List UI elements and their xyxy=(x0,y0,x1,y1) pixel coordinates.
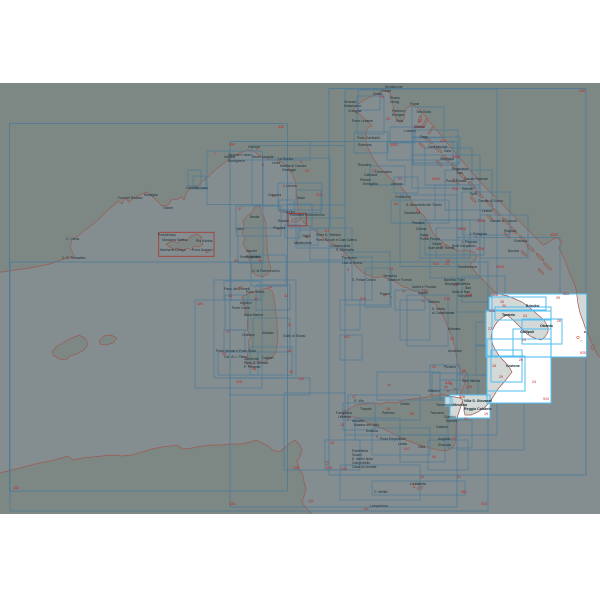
svg-text:Civitanova: Civitanova xyxy=(395,195,411,199)
svg-text:432: 432 xyxy=(278,125,284,129)
svg-text:29: 29 xyxy=(556,296,560,300)
svg-text:Sestri Levante: Sestri Levante xyxy=(252,155,274,159)
svg-text:Gravosa: Gravosa xyxy=(514,239,527,243)
svg-text:Taranto: Taranto xyxy=(502,313,516,317)
svg-text:34: 34 xyxy=(394,202,398,206)
svg-text:432: 432 xyxy=(13,486,19,490)
svg-text:21: 21 xyxy=(457,475,461,479)
svg-text:Ajaccio: Ajaccio xyxy=(246,249,257,253)
svg-text:Trau: Trau xyxy=(456,171,463,175)
svg-text:18: 18 xyxy=(492,364,496,368)
svg-text:Trapani: Trapani xyxy=(360,407,372,411)
svg-text:3008: 3008 xyxy=(476,247,484,251)
svg-text:16: 16 xyxy=(258,259,262,263)
svg-text:18: 18 xyxy=(330,441,334,445)
svg-text:Malamocco: Malamocco xyxy=(344,104,361,108)
svg-text:30: 30 xyxy=(502,304,506,308)
svg-text:Casa di Levante: Casa di Levante xyxy=(352,465,377,469)
svg-text:Crotone: Crotone xyxy=(506,364,520,368)
svg-text:Villa S. Giovanni: Villa S. Giovanni xyxy=(464,399,492,403)
svg-text:40: 40 xyxy=(254,297,258,301)
svg-text:910: 910 xyxy=(360,297,366,301)
svg-text:Pianosa: Pianosa xyxy=(273,226,285,230)
svg-text:Punta Planka: Punta Planka xyxy=(446,179,466,183)
svg-text:Riposto: Riposto xyxy=(446,419,458,423)
svg-text:Sibenik: Sibenik xyxy=(462,187,473,191)
svg-text:3004: 3004 xyxy=(432,177,440,181)
svg-text:Imperia: Imperia xyxy=(224,155,235,159)
svg-text:Rio Marina: Rio Marina xyxy=(196,239,213,243)
svg-text:Bordighera: Bordighera xyxy=(228,159,245,163)
svg-text:Punta Penna: Punta Penna xyxy=(420,237,440,241)
svg-text:Tremestieri: Tremestieri xyxy=(436,403,453,407)
svg-text:S. Vito: S. Vito xyxy=(354,399,364,403)
svg-text:Lido di Roma: Lido di Roma xyxy=(342,261,362,265)
svg-text:562: 562 xyxy=(461,490,467,494)
svg-text:La Valletta: La Valletta xyxy=(410,482,426,486)
svg-text:433: 433 xyxy=(326,466,332,470)
svg-text:926: 926 xyxy=(489,309,495,313)
svg-text:Palermo: Palermo xyxy=(382,411,395,415)
svg-text:34: 34 xyxy=(420,475,424,479)
svg-text:Catania: Catania xyxy=(436,425,448,429)
svg-text:Porto S. Stefano: Porto S. Stefano xyxy=(316,233,341,237)
svg-text:Brindisi: Brindisi xyxy=(526,304,539,308)
svg-text:C. S. Sebastian: C. S. Sebastian xyxy=(62,256,86,260)
svg-text:Napoli: Napoli xyxy=(418,291,428,295)
svg-text:Gaeta e Formia: Gaeta e Formia xyxy=(388,278,412,282)
svg-text:Reggio Calabria: Reggio Calabria xyxy=(464,407,492,411)
svg-text:Canale di Zirona: Canale di Zirona xyxy=(478,199,503,203)
svg-text:44: 44 xyxy=(234,259,238,263)
svg-text:Pizzano: Pizzano xyxy=(444,365,456,369)
svg-text:238: 238 xyxy=(293,466,299,470)
svg-text:45: 45 xyxy=(228,294,232,298)
svg-text:Monopoli: Monopoli xyxy=(458,294,472,298)
svg-text:S. Felice Circeo: S. Felice Circeo xyxy=(352,278,376,282)
svg-text:28: 28 xyxy=(557,319,561,323)
svg-text:Mazara del Vallo: Mazara del Vallo xyxy=(354,423,379,427)
svg-text:Maratea: Maratea xyxy=(448,327,461,331)
svg-text:Golfo di Tonasi: Golfo di Tonasi xyxy=(283,334,306,338)
svg-text:Licata: Licata xyxy=(398,442,407,446)
svg-text:918: 918 xyxy=(452,187,458,191)
svg-text:25: 25 xyxy=(522,338,526,342)
svg-text:A30: A30 xyxy=(445,381,451,385)
svg-text:21: 21 xyxy=(464,417,468,421)
svg-text:Canale Pazman: Canale Pazman xyxy=(464,177,488,181)
svg-text:Sciacca: Sciacca xyxy=(366,429,378,433)
svg-text:Alghero: Alghero xyxy=(240,301,252,305)
svg-text:31: 31 xyxy=(398,177,402,181)
svg-text:Siracusa: Siracusa xyxy=(438,443,451,447)
svg-text:4310: 4310 xyxy=(550,233,558,237)
svg-text:Porto Levante: Porto Levante xyxy=(352,119,373,123)
svg-text:Porto Ercole e Cala Galera: Porto Ercole e Cala Galera xyxy=(316,238,357,242)
svg-text:40: 40 xyxy=(432,455,436,459)
svg-text:Vibo Valona: Vibo Valona xyxy=(462,379,480,383)
svg-text:27: 27 xyxy=(488,327,492,331)
svg-text:Arbatax: Arbatax xyxy=(262,331,274,335)
svg-text:Porto Azzurro: Porto Azzurro xyxy=(192,248,213,252)
svg-text:Pola: Pola xyxy=(396,119,403,123)
svg-text:Fiumicino: Fiumicino xyxy=(342,256,357,260)
svg-text:Porto Empedocle: Porto Empedocle xyxy=(380,437,406,441)
svg-text:di Castellabate: di Castellabate xyxy=(432,311,455,315)
svg-text:920: 920 xyxy=(580,351,586,355)
svg-text:La Spezia: La Spezia xyxy=(278,157,293,161)
svg-text:43: 43 xyxy=(287,323,291,327)
svg-text:Porto Vesme e Porto Sous: Porto Vesme e Porto Sous xyxy=(216,349,256,353)
svg-text:Ravenna: Ravenna xyxy=(358,143,372,147)
svg-text:Piombino: Piombino xyxy=(290,213,304,217)
svg-text:45: 45 xyxy=(289,370,293,374)
svg-text:124: 124 xyxy=(298,377,304,381)
svg-text:22: 22 xyxy=(418,119,422,123)
svg-text:44: 44 xyxy=(287,349,291,353)
svg-text:Pago: Pago xyxy=(420,135,428,139)
svg-text:Ortona: Ortona xyxy=(416,227,426,231)
svg-text:917: 917 xyxy=(404,447,410,451)
svg-text:420: 420 xyxy=(197,302,203,306)
svg-text:01: 01 xyxy=(450,337,454,341)
svg-text:Gela: Gela xyxy=(418,445,425,449)
svg-text:Trieste: Trieste xyxy=(381,89,391,93)
svg-text:Monaco: Monaco xyxy=(196,186,208,190)
svg-text:433: 433 xyxy=(481,502,487,506)
svg-text:3006: 3006 xyxy=(458,227,466,231)
svg-text:Sebenico: Sebenico xyxy=(440,157,454,161)
svg-text:Manfredonia: Manfredonia xyxy=(458,265,477,269)
svg-text:436: 436 xyxy=(579,89,585,93)
svg-text:434: 434 xyxy=(440,139,446,143)
svg-text:14: 14 xyxy=(462,369,466,373)
svg-text:26: 26 xyxy=(519,358,523,362)
svg-text:9: 9 xyxy=(347,268,349,272)
svg-text:27: 27 xyxy=(452,437,456,441)
svg-text:Porto Conte: Porto Conte xyxy=(232,306,250,310)
svg-text:Bocche: Bocche xyxy=(508,249,519,253)
svg-text:24: 24 xyxy=(532,380,536,384)
svg-text:Senigallia: Senigallia xyxy=(363,182,378,186)
svg-text:42: 42 xyxy=(284,294,288,298)
svg-text:434: 434 xyxy=(229,502,235,506)
svg-text:Vada: Vada xyxy=(297,196,305,200)
svg-text:Cefalu: Cefalu xyxy=(400,402,410,406)
svg-text:13: 13 xyxy=(340,423,344,427)
svg-text:Giulianova: Giulianova xyxy=(404,211,420,215)
svg-text:Amantea: Amantea xyxy=(448,349,462,353)
svg-text:I. Pianosa: I. Pianosa xyxy=(462,240,477,244)
svg-text:418: 418 xyxy=(341,467,347,471)
svg-text:14: 14 xyxy=(389,267,393,271)
svg-text:C. Creus: C. Creus xyxy=(66,237,80,241)
svg-text:47: 47 xyxy=(238,207,242,211)
svg-text:Tela Koral: Tela Koral xyxy=(416,110,431,114)
svg-text:Giglio: Giglio xyxy=(302,234,311,238)
svg-text:8: 8 xyxy=(262,163,264,167)
svg-text:Ischia e Procida: Ischia e Procida xyxy=(412,285,436,289)
svg-text:Bisceglie: Bisceglie xyxy=(445,282,459,286)
svg-text:Umag: Umag xyxy=(390,100,399,104)
svg-text:15: 15 xyxy=(305,169,309,173)
svg-text:S. Marinella: S. Marinella xyxy=(336,248,354,252)
svg-text:Rosato: Rosato xyxy=(278,219,289,223)
svg-text:Milazzo: Milazzo xyxy=(428,389,440,393)
svg-text:913: 913 xyxy=(316,193,322,197)
svg-text:29: 29 xyxy=(499,375,503,379)
svg-text:Canale di Curzola: Canale di Curzola xyxy=(490,219,517,223)
svg-text:434: 434 xyxy=(229,143,235,147)
svg-text:Cesenatico: Cesenatico xyxy=(375,170,392,174)
svg-text:Marina di Campo: Marina di Campo xyxy=(160,248,186,252)
svg-text:Ragusa: Ragusa xyxy=(504,229,516,233)
svg-text:Cherso: Cherso xyxy=(414,125,425,129)
svg-text:I. Pelagosa: I. Pelagosa xyxy=(470,232,487,236)
svg-text:Gallipoli: Gallipoli xyxy=(520,330,534,334)
svg-text:G. di Portovecchio: G. di Portovecchio xyxy=(252,269,280,273)
svg-text:S. Benedetto del Tronto: S. Benedetto del Tronto xyxy=(406,203,442,207)
svg-text:12: 12 xyxy=(432,365,436,369)
svg-text:Salerno: Salerno xyxy=(428,300,440,304)
svg-text:Ponza: Ponza xyxy=(380,292,390,296)
svg-text:Bastia: Bastia xyxy=(250,215,260,219)
svg-text:Rodi Garganico: Rodi Garganico xyxy=(452,244,476,248)
svg-text:Tolone: Tolone xyxy=(163,206,173,210)
svg-text:24: 24 xyxy=(523,314,527,318)
svg-text:Foci del Rodano: Foci del Rodano xyxy=(118,196,143,200)
svg-text:Levanzo: Levanzo xyxy=(338,415,351,419)
svg-text:Marciana Marina: Marciana Marina xyxy=(162,238,187,242)
svg-text:Taormina: Taormina xyxy=(430,411,444,415)
svg-text:3002: 3002 xyxy=(390,143,398,147)
svg-text:Isole delle Tremiti: Isole delle Tremiti xyxy=(428,246,455,250)
svg-text:19: 19 xyxy=(484,412,488,416)
svg-text:Rovigno: Rovigno xyxy=(392,113,405,117)
svg-text:3008: 3008 xyxy=(477,219,485,223)
svg-text:914: 914 xyxy=(444,297,450,301)
svg-text:Ancona: Ancona xyxy=(391,182,403,186)
svg-text:28: 28 xyxy=(410,412,414,416)
svg-text:47: 47 xyxy=(226,330,230,334)
svg-text:912: 912 xyxy=(344,335,350,339)
svg-text:Otranto: Otranto xyxy=(540,324,554,328)
svg-text:Bosa Marina: Bosa Marina xyxy=(244,313,263,317)
svg-text:Livorno: Livorno xyxy=(286,184,297,188)
svg-text:3010: 3010 xyxy=(496,265,504,269)
svg-text:34: 34 xyxy=(445,262,449,266)
svg-text:Grado: Grado xyxy=(373,92,383,96)
svg-text:Cagliari: Cagliari xyxy=(262,356,274,360)
svg-text:928: 928 xyxy=(492,293,498,297)
svg-text:Gorgona: Gorgona xyxy=(268,193,281,197)
svg-text:Marsiglia: Marsiglia xyxy=(144,193,158,197)
svg-text:914: 914 xyxy=(433,262,439,266)
svg-text:Rosolina: Rosolina xyxy=(358,163,371,167)
svg-text:Propriano: Propriano xyxy=(246,255,261,259)
svg-text:Lampedusa: Lampedusa xyxy=(370,504,388,508)
svg-text:9: 9 xyxy=(376,435,378,439)
svg-text:921: 921 xyxy=(563,292,569,296)
svg-text:239: 239 xyxy=(466,385,472,389)
svg-text:Lesina: Lesina xyxy=(482,209,492,213)
svg-text:Viareggio: Viareggio xyxy=(282,168,296,172)
svg-text:Split: Split xyxy=(470,192,477,196)
svg-text:20: 20 xyxy=(386,117,390,121)
svg-text:910: 910 xyxy=(543,397,549,401)
svg-text:Portovecchio: Portovecchio xyxy=(305,213,325,217)
svg-text:Pescara: Pescara xyxy=(412,221,425,225)
svg-text:Oristano: Oristano xyxy=(242,333,255,337)
svg-text:Lussino: Lussino xyxy=(404,129,416,133)
svg-text:128: 128 xyxy=(236,380,242,384)
svg-text:Chioggia: Chioggia xyxy=(348,109,361,113)
svg-text:7: 7 xyxy=(214,152,216,156)
svg-text:C. Melita: C. Melita xyxy=(374,490,387,494)
svg-text:Fiume: Fiume xyxy=(410,102,420,106)
svg-text:Montecristo: Montecristo xyxy=(294,241,312,245)
svg-text:Porto Garibaldi: Porto Garibaldi xyxy=(357,136,380,140)
svg-text:Porto Torres: Porto Torres xyxy=(246,290,265,294)
svg-text:P. Ponente: P. Ponente xyxy=(244,365,260,369)
svg-text:Calvi: Calvi xyxy=(236,227,244,231)
svg-text:Genova: Genova xyxy=(248,145,260,149)
svg-text:6: 6 xyxy=(283,184,285,188)
svg-text:Portoferraio: Portoferraio xyxy=(158,233,176,237)
svg-text:Zara: Zara xyxy=(444,149,451,153)
svg-text:Augusta: Augusta xyxy=(438,437,451,441)
